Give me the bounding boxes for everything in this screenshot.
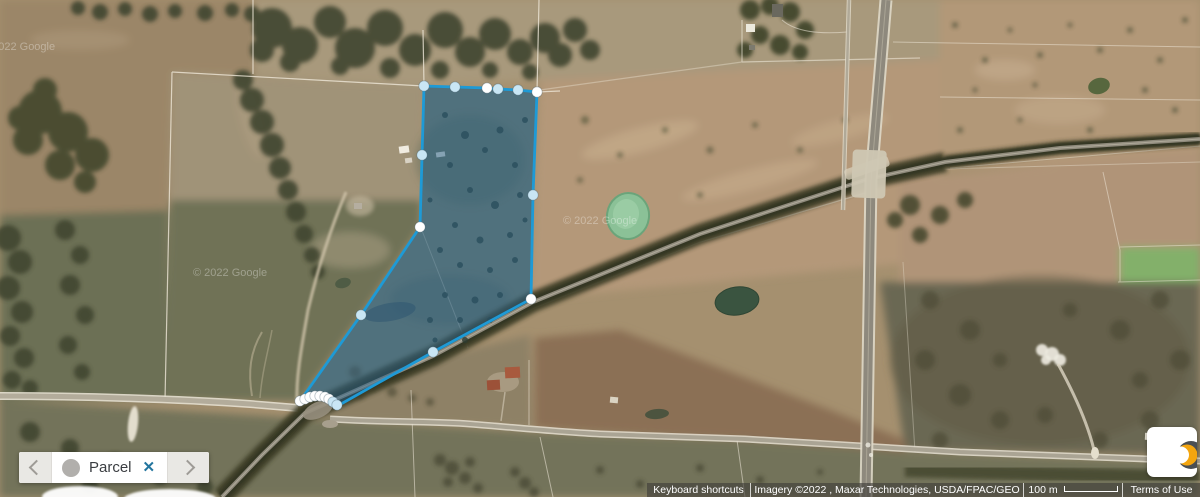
parcel-vertex-handle[interactable]: [428, 347, 438, 357]
imagery-watermark: © 2022 Google: [193, 267, 267, 279]
close-parcel-icon[interactable]: ✕: [143, 460, 156, 475]
imagery-watermark: ©2022 Google: [0, 41, 55, 53]
parcel-vertex-handle[interactable]: [482, 83, 492, 93]
map-attribution-bar: Keyboard shortcuts Imagery ©2022 , Maxar…: [647, 483, 1200, 497]
parcel-vertex-handle[interactable]: [528, 190, 538, 200]
parcel-vertex-handle[interactable]: [532, 87, 542, 97]
parcel-toolbar: Parcel ✕: [19, 452, 209, 483]
next-parcel-button[interactable]: [167, 452, 209, 483]
imagery-credit: Imagery ©2022 , Maxar Technologies, USDA…: [751, 483, 1023, 497]
parcel-vertex-handle[interactable]: [356, 310, 366, 320]
parcel-vertex-handle[interactable]: [415, 222, 425, 232]
imagery-watermark: © 2022 Google: [563, 215, 637, 227]
prev-parcel-button[interactable]: [19, 452, 52, 483]
terms-of-use-link[interactable]: Terms of Use: [1123, 483, 1200, 497]
map-viewport[interactable]: ©2022 Google© 2022 Google© 2022 Google P…: [0, 0, 1200, 497]
parcel-toolbar-label-area: Parcel ✕: [52, 452, 167, 483]
scale-bar-icon: [1064, 486, 1118, 492]
parcel-label: Parcel: [89, 459, 132, 476]
parcel-vertex-handle[interactable]: [450, 82, 460, 92]
parcel-vertex-handle[interactable]: [526, 294, 536, 304]
parcel-vertex-handle[interactable]: [417, 150, 427, 160]
chevron-right-icon: [179, 460, 195, 476]
app-logo-button[interactable]: [1147, 427, 1197, 477]
parcel-vertex-handle[interactable]: [332, 400, 342, 410]
satellite-imagery[interactable]: ©2022 Google© 2022 Google© 2022 Google: [0, 0, 1200, 497]
parcel-vertex-handle[interactable]: [493, 84, 503, 94]
app-logo-crescent-icon: [1147, 427, 1197, 477]
keyboard-shortcuts-link[interactable]: Keyboard shortcuts: [647, 483, 750, 497]
scale-label: 100 m: [1028, 484, 1057, 496]
map-scale: 100 m: [1024, 483, 1122, 497]
parcel-legend-dot-icon: [62, 459, 80, 477]
terrain-fields: [0, 0, 1200, 497]
parcel-vertex-handle[interactable]: [419, 81, 429, 91]
parcel-vertex-handle[interactable]: [513, 85, 523, 95]
chevron-left-icon: [29, 460, 45, 476]
